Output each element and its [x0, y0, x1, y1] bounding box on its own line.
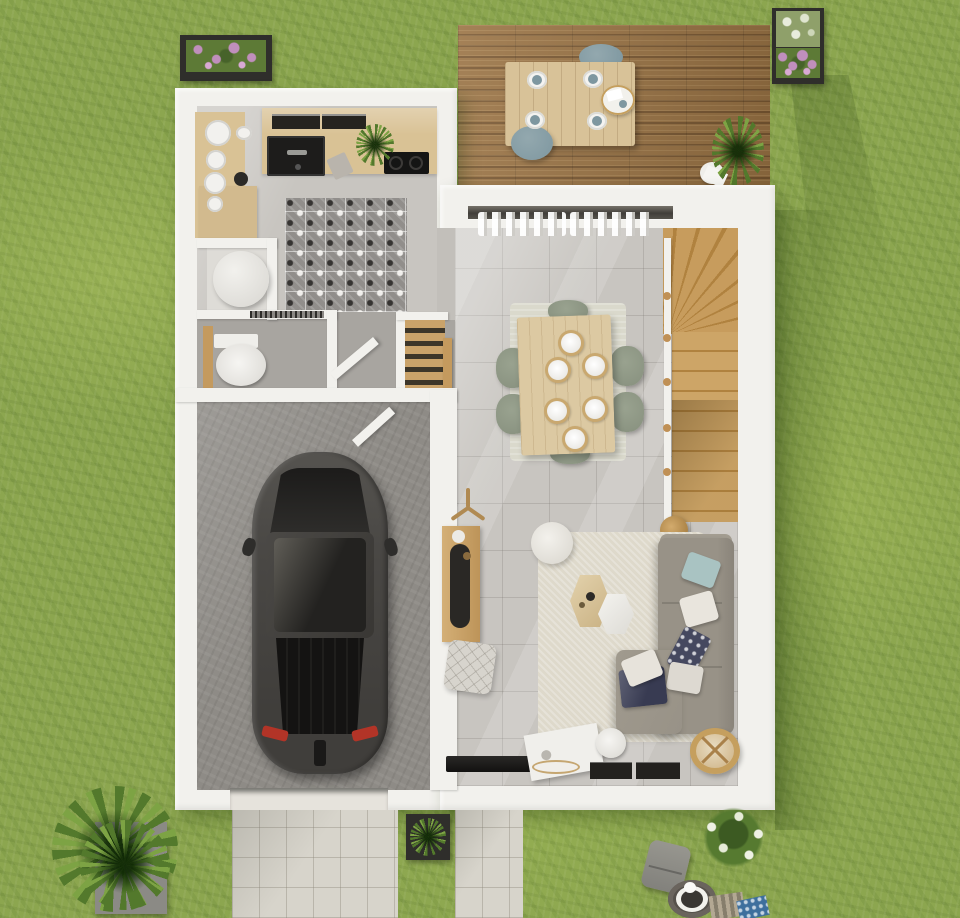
pantry-wall	[396, 312, 448, 320]
table-decor	[586, 592, 595, 601]
rail-post	[663, 334, 671, 342]
flower-planter-top-right	[772, 8, 824, 84]
stairs-winder	[663, 228, 738, 334]
front-path	[455, 810, 523, 918]
house-shadow	[775, 210, 845, 830]
plate-stack	[206, 150, 226, 170]
place-setting	[545, 357, 571, 383]
quilted-pouf	[443, 639, 497, 695]
water-heater	[213, 251, 269, 307]
bottom-window	[590, 762, 632, 779]
dining-chair	[610, 346, 644, 386]
place-setting	[558, 330, 584, 356]
place-setting	[582, 353, 608, 379]
plate-stack	[205, 120, 231, 146]
bottom-window	[636, 762, 680, 779]
bowl	[236, 126, 252, 140]
closet-wall	[197, 238, 277, 248]
pillow-white	[666, 661, 704, 694]
boxwood-planter	[406, 814, 450, 860]
wall-tv	[446, 756, 534, 772]
pantry-shelves	[405, 320, 445, 390]
kitchen-sink	[267, 136, 325, 176]
rail-post	[663, 468, 671, 476]
table-decor	[579, 602, 585, 608]
rail-post	[663, 292, 671, 300]
plate-stack	[204, 172, 226, 194]
dining-chair	[610, 392, 644, 432]
deck-plate	[525, 111, 545, 129]
kitchen-window	[322, 114, 366, 129]
sideboard-decor	[452, 530, 465, 543]
rattan-chair	[690, 728, 740, 774]
car-rear-window	[276, 638, 364, 734]
flowering-bush	[696, 806, 774, 876]
sideboard-decor	[463, 552, 471, 560]
coat-stand	[448, 486, 488, 526]
stairs-shadow	[672, 400, 738, 522]
driveway	[232, 810, 398, 918]
car	[252, 452, 388, 774]
pink-flowers	[186, 40, 266, 72]
deck-plate	[583, 70, 603, 88]
wc-shelf	[203, 326, 213, 388]
white-stool	[596, 728, 626, 758]
car-windshield	[270, 468, 370, 534]
pantry-wall	[396, 312, 405, 394]
curtains	[478, 212, 566, 236]
white-bush	[776, 11, 820, 47]
car-roof-glass	[274, 538, 366, 632]
kitchen-living-connector	[437, 228, 457, 320]
kitchen-window	[272, 114, 320, 129]
flower-planter-top-left	[180, 35, 272, 81]
place-setting	[544, 398, 570, 424]
deck-plate	[587, 112, 607, 130]
bowl	[207, 196, 223, 212]
base-cabinet	[199, 186, 257, 240]
serving-tray	[601, 85, 635, 115]
patterned-cement-tiles	[285, 198, 407, 312]
wc-vent-grille	[250, 311, 324, 318]
floorplan-render	[0, 0, 960, 918]
round-pouf	[531, 522, 573, 564]
coffee-maker	[234, 172, 248, 186]
hall-garage-wall	[175, 388, 457, 402]
potted-plant	[712, 116, 764, 186]
rail-post	[663, 378, 671, 386]
floor-tray	[532, 760, 580, 774]
boxwood-plant	[410, 818, 446, 856]
wc-wall	[327, 310, 337, 395]
place-setting	[562, 426, 588, 452]
toilet	[216, 344, 266, 386]
pink-flowers	[776, 48, 820, 78]
place-setting	[582, 396, 608, 422]
rail-post	[663, 424, 671, 432]
curtains	[570, 212, 652, 236]
garage-door-opening	[230, 788, 388, 810]
car-trunk-detail	[314, 740, 326, 766]
outdoor-chair-bottom	[511, 126, 553, 160]
deck-plate	[527, 71, 547, 89]
counter-plant	[356, 124, 394, 166]
